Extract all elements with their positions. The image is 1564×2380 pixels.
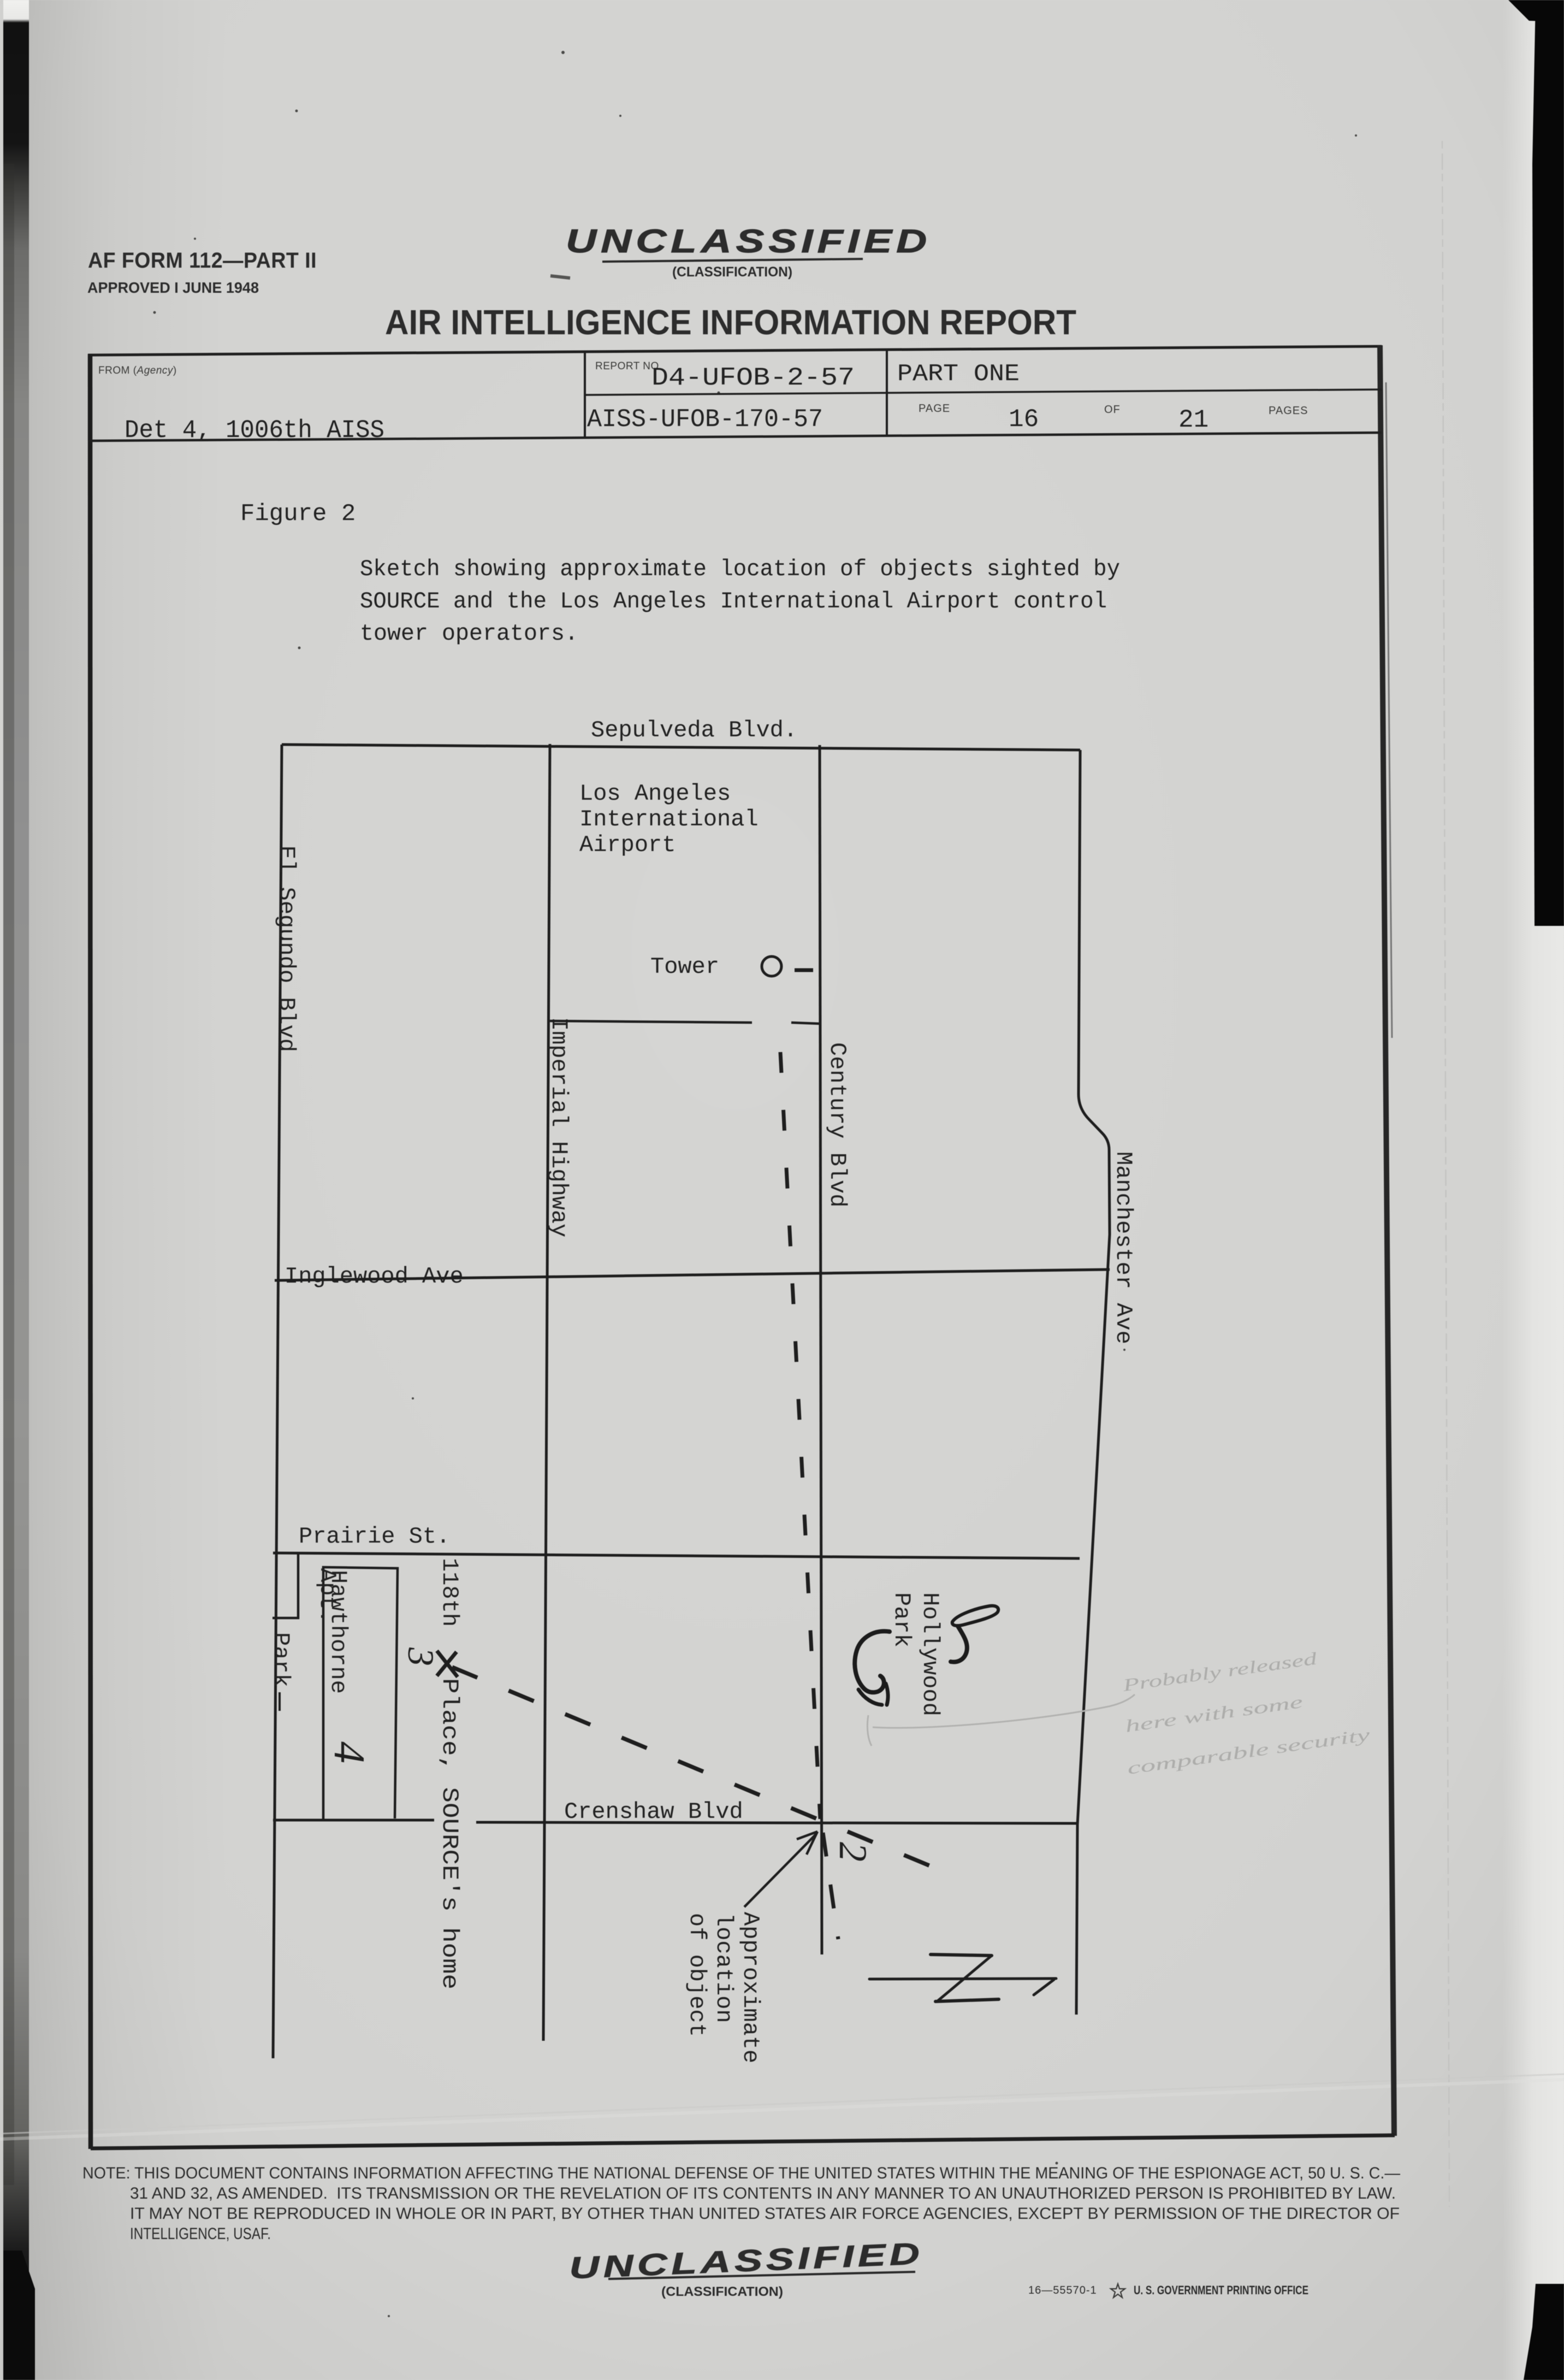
svg-text:Century Blvd: Century Blvd [824, 1042, 850, 1207]
svg-text:Place, SOURCE's home: Place, SOURCE's home [436, 1678, 463, 1989]
svg-text:AIR INTELLIGENCE INFORMATION R: AIR INTELLIGENCE INFORMATION REPORT [385, 303, 1076, 342]
svg-text:(CLASSIFICATION): (CLASSIFICATION) [661, 2284, 783, 2299]
svg-text:118th: 118th [436, 1558, 463, 1627]
svg-text:Crenshaw Blvd: Crenshaw Blvd [564, 1799, 743, 1825]
svg-text:Sketch showing approximate loc: Sketch showing approximate location of o… [360, 556, 1120, 582]
svg-text:21: 21 [1178, 406, 1208, 434]
svg-text:Park: Park [888, 1592, 915, 1647]
svg-text:NOTE: THIS DOCUMENT CONTAINS I: NOTE: THIS DOCUMENT CONTAINS INFORMATION… [82, 2164, 1400, 2182]
svg-text:Figure 2: Figure 2 [240, 500, 356, 528]
svg-text:Approximate: Approximate [737, 1912, 763, 2063]
svg-text:D4-UFOB-2-57: D4-UFOB-2-57 [651, 364, 855, 392]
svg-text:31 AND 32, AS AMENDED. ITS TR: 31 AND 32, AS AMENDED. ITS TRANSMISSION … [130, 2184, 1396, 2202]
svg-text:IT MAY NOT BE REPRODUCED IN WH: IT MAY NOT BE REPRODUCED IN WHOLE OR IN … [130, 2205, 1400, 2223]
svg-text:Det 4, 1006th AISS: Det 4, 1006th AISS [125, 416, 384, 445]
svg-text:PAGE: PAGE [919, 403, 950, 415]
svg-text:Apt.: Apt. [314, 1568, 340, 1623]
svg-text:APPROVED I JUNE 1948: APPROVED I JUNE 1948 [87, 279, 259, 296]
svg-text:Sepulveda Blvd.: Sepulveda Blvd. [591, 717, 797, 743]
svg-text:FROM (Agency): FROM (Agency) [98, 365, 177, 376]
svg-text:El Segundo Blvd: El Segundo Blvd [273, 846, 299, 1052]
svg-text:of object: of object [684, 1913, 710, 2037]
svg-text:AF FORM 112—PART II: AF FORM 112—PART II [88, 249, 317, 273]
svg-text:Tower: Tower [650, 954, 719, 980]
svg-text:OF: OF [1104, 404, 1121, 416]
svg-text:3: 3 [400, 1647, 442, 1666]
svg-text:Prairie St.: Prairie St. [299, 1523, 450, 1550]
svg-text:(CLASSIFICATION): (CLASSIFICATION) [672, 264, 792, 280]
svg-text:International: International [579, 806, 759, 832]
svg-text:Manchester Ave: Manchester Ave [1110, 1151, 1136, 1344]
svg-text:UNCLASSIFIED: UNCLASSIFIED [566, 223, 931, 259]
svg-text:location: location [710, 1913, 737, 2023]
svg-text:Inglewood Ave: Inglewood Ave [285, 1263, 464, 1290]
svg-text:Imperial Highway: Imperial Highway [546, 1017, 572, 1237]
svg-text:U. S. GOVERNMENT PRINTING OFFI: U. S. GOVERNMENT PRINTING OFFICE [1134, 2283, 1308, 2297]
svg-text:SOURCE and the Los Angeles Int: SOURCE and the Los Angeles International… [360, 588, 1107, 615]
svg-text:Park: Park [268, 1632, 294, 1687]
svg-text:PART ONE: PART ONE [897, 361, 1020, 388]
svg-text:PAGES: PAGES [1269, 405, 1308, 417]
svg-text:16—55570-1: 16—55570-1 [1028, 2284, 1097, 2296]
svg-text:AISS-UFOB-170-57: AISS-UFOB-170-57 [587, 405, 823, 434]
svg-text:INTELLIGENCE, USAF.: INTELLIGENCE, USAF. [130, 2225, 271, 2243]
svg-text:2: 2 [831, 1842, 875, 1862]
svg-text:16: 16 [1009, 405, 1039, 434]
svg-text:4: 4 [325, 1741, 373, 1763]
svg-text:tower operators.: tower operators. [360, 621, 578, 647]
svg-text:Hollywood: Hollywood [917, 1592, 943, 1716]
svg-text:Los Angeles: Los Angeles [579, 781, 731, 807]
svg-text:Airport: Airport [579, 832, 676, 858]
